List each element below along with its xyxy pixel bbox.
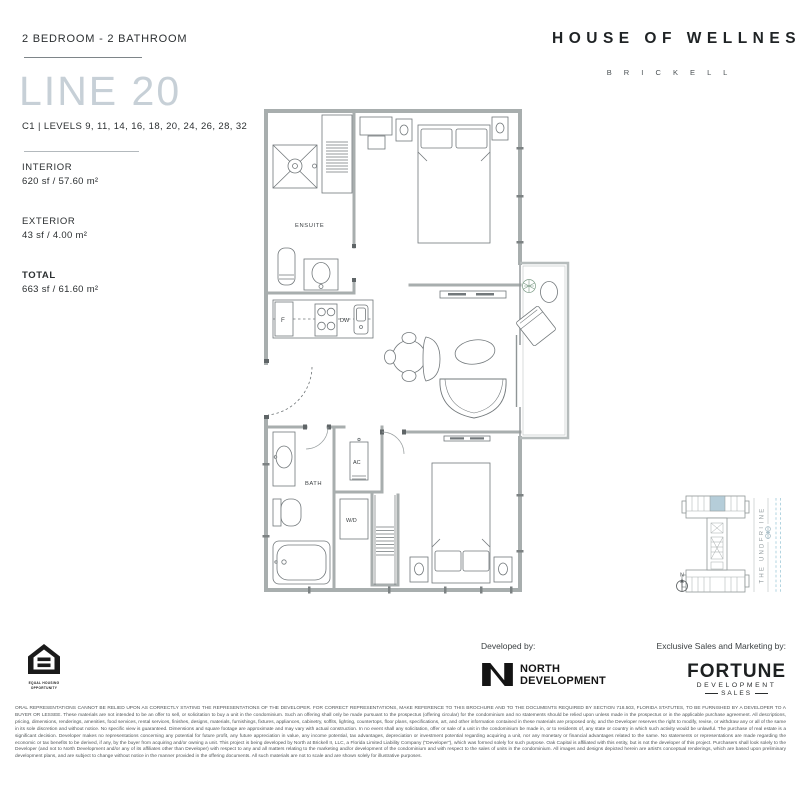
interior-label: INTERIOR: [22, 162, 72, 173]
developer-name-line1: NORTH: [520, 663, 606, 675]
brand-subtitle: B R I C K E L L: [552, 68, 787, 77]
bath-door-arc: [306, 427, 328, 449]
bath-vanity: [273, 432, 295, 486]
ensuite-shower: [273, 145, 317, 188]
brochure-page: 2 BEDROOM - 2 BATHROOM LINE 20 C1 | LEVE…: [0, 0, 800, 800]
balcony-lounge-chair: [516, 306, 557, 347]
bathtub: [273, 541, 330, 584]
dining-set: [385, 333, 426, 382]
floor-plan: ENSUITE F DW BATH AC W/D: [248, 95, 578, 605]
developer-block: Developed by: NORTH DEVELOPMENT: [481, 641, 606, 687]
equal-housing-label-2: OPPORTUNITY: [27, 686, 61, 690]
brand-block: HOUSE OF WELLNESS B R I C K E L L: [552, 30, 787, 77]
washer-dryer-label: W/D: [346, 518, 357, 524]
bedroom2-door-arc: [382, 432, 404, 454]
ensuite-sink: [278, 248, 295, 285]
ensuite-label: ENSUITE: [295, 223, 324, 229]
balcony-plant: [523, 280, 536, 293]
tv-console-bedroom2: [444, 436, 490, 441]
brand-title: HOUSE OF WELLNESS: [552, 30, 787, 48]
underline-label: THE UNDERLINE: [760, 507, 766, 584]
ensuite-closet: [322, 115, 352, 193]
sliding-door: [517, 265, 521, 436]
unit-type-label: 2 BEDROOM - 2 BATHROOM: [22, 33, 187, 45]
legal-disclaimer: ORAL REPRESENTATIONS CANNOT BE RELIED UP…: [15, 706, 786, 761]
developed-by-label: Developed by:: [481, 641, 606, 651]
fortune-line3: SALES: [721, 690, 752, 697]
dishwasher-label: DW: [340, 318, 350, 324]
total-value: 663 sf / 61.60 m²: [22, 284, 98, 295]
equal-housing-block: EQUAL HOUSING OPPORTUNITY: [20, 643, 68, 690]
bath-toilet: [273, 499, 301, 526]
coffee-table: [454, 337, 497, 366]
fortune-line2: DEVELOPMENT: [687, 682, 786, 689]
bedroom2-closet-shelves: [375, 495, 395, 585]
water-lines: [776, 498, 781, 592]
armchair: [423, 337, 440, 381]
developer-name-line2: DEVELOPMENT: [520, 675, 606, 687]
sofa: [440, 379, 506, 418]
exterior-value: 43 sf / 4.00 m²: [22, 230, 87, 241]
fortune-line1: FORTUNE: [687, 663, 786, 681]
fortune-logo: FORTUNE DEVELOPMENT SALES: [687, 663, 786, 697]
tv-console-living: [440, 291, 506, 298]
equal-housing-label-1: EQUAL HOUSING: [27, 681, 61, 685]
balcony-table: [541, 282, 558, 303]
ensuite-toilet: [304, 259, 338, 290]
stats-divider: [24, 151, 139, 152]
interior-value: 620 sf / 57.60 m²: [22, 176, 98, 187]
header-divider: [24, 57, 142, 58]
highlighted-unit: [710, 496, 725, 511]
sales-by-label: Exclusive Sales and Marketing by:: [657, 641, 786, 651]
entry-door-arc: [268, 367, 312, 415]
page-title: LINE 20: [19, 68, 181, 115]
bath-label: BATH: [305, 481, 322, 487]
underline-motif: THE UNDERLINE: [754, 498, 781, 592]
bedroom2-bed: [432, 463, 490, 583]
primary-bed: [418, 125, 490, 243]
sales-block: Exclusive Sales and Marketing by: FORTUN…: [657, 641, 786, 699]
fridge-label: F: [281, 317, 285, 324]
levels-label: C1 | LEVELS 9, 11, 14, 16, 18, 20, 24, 2…: [22, 121, 247, 132]
equal-housing-icon: [27, 643, 61, 675]
kitchen-counter: [273, 300, 373, 338]
north-development-icon: [481, 662, 514, 687]
exterior-label: EXTERIOR: [22, 216, 75, 227]
primary-dresser: [360, 117, 392, 149]
total-label: TOTAL: [22, 270, 56, 281]
ac-label: AC: [353, 460, 361, 466]
north-label: N: [680, 573, 684, 579]
key-plan: N THE UNDERLINE: [670, 470, 795, 605]
